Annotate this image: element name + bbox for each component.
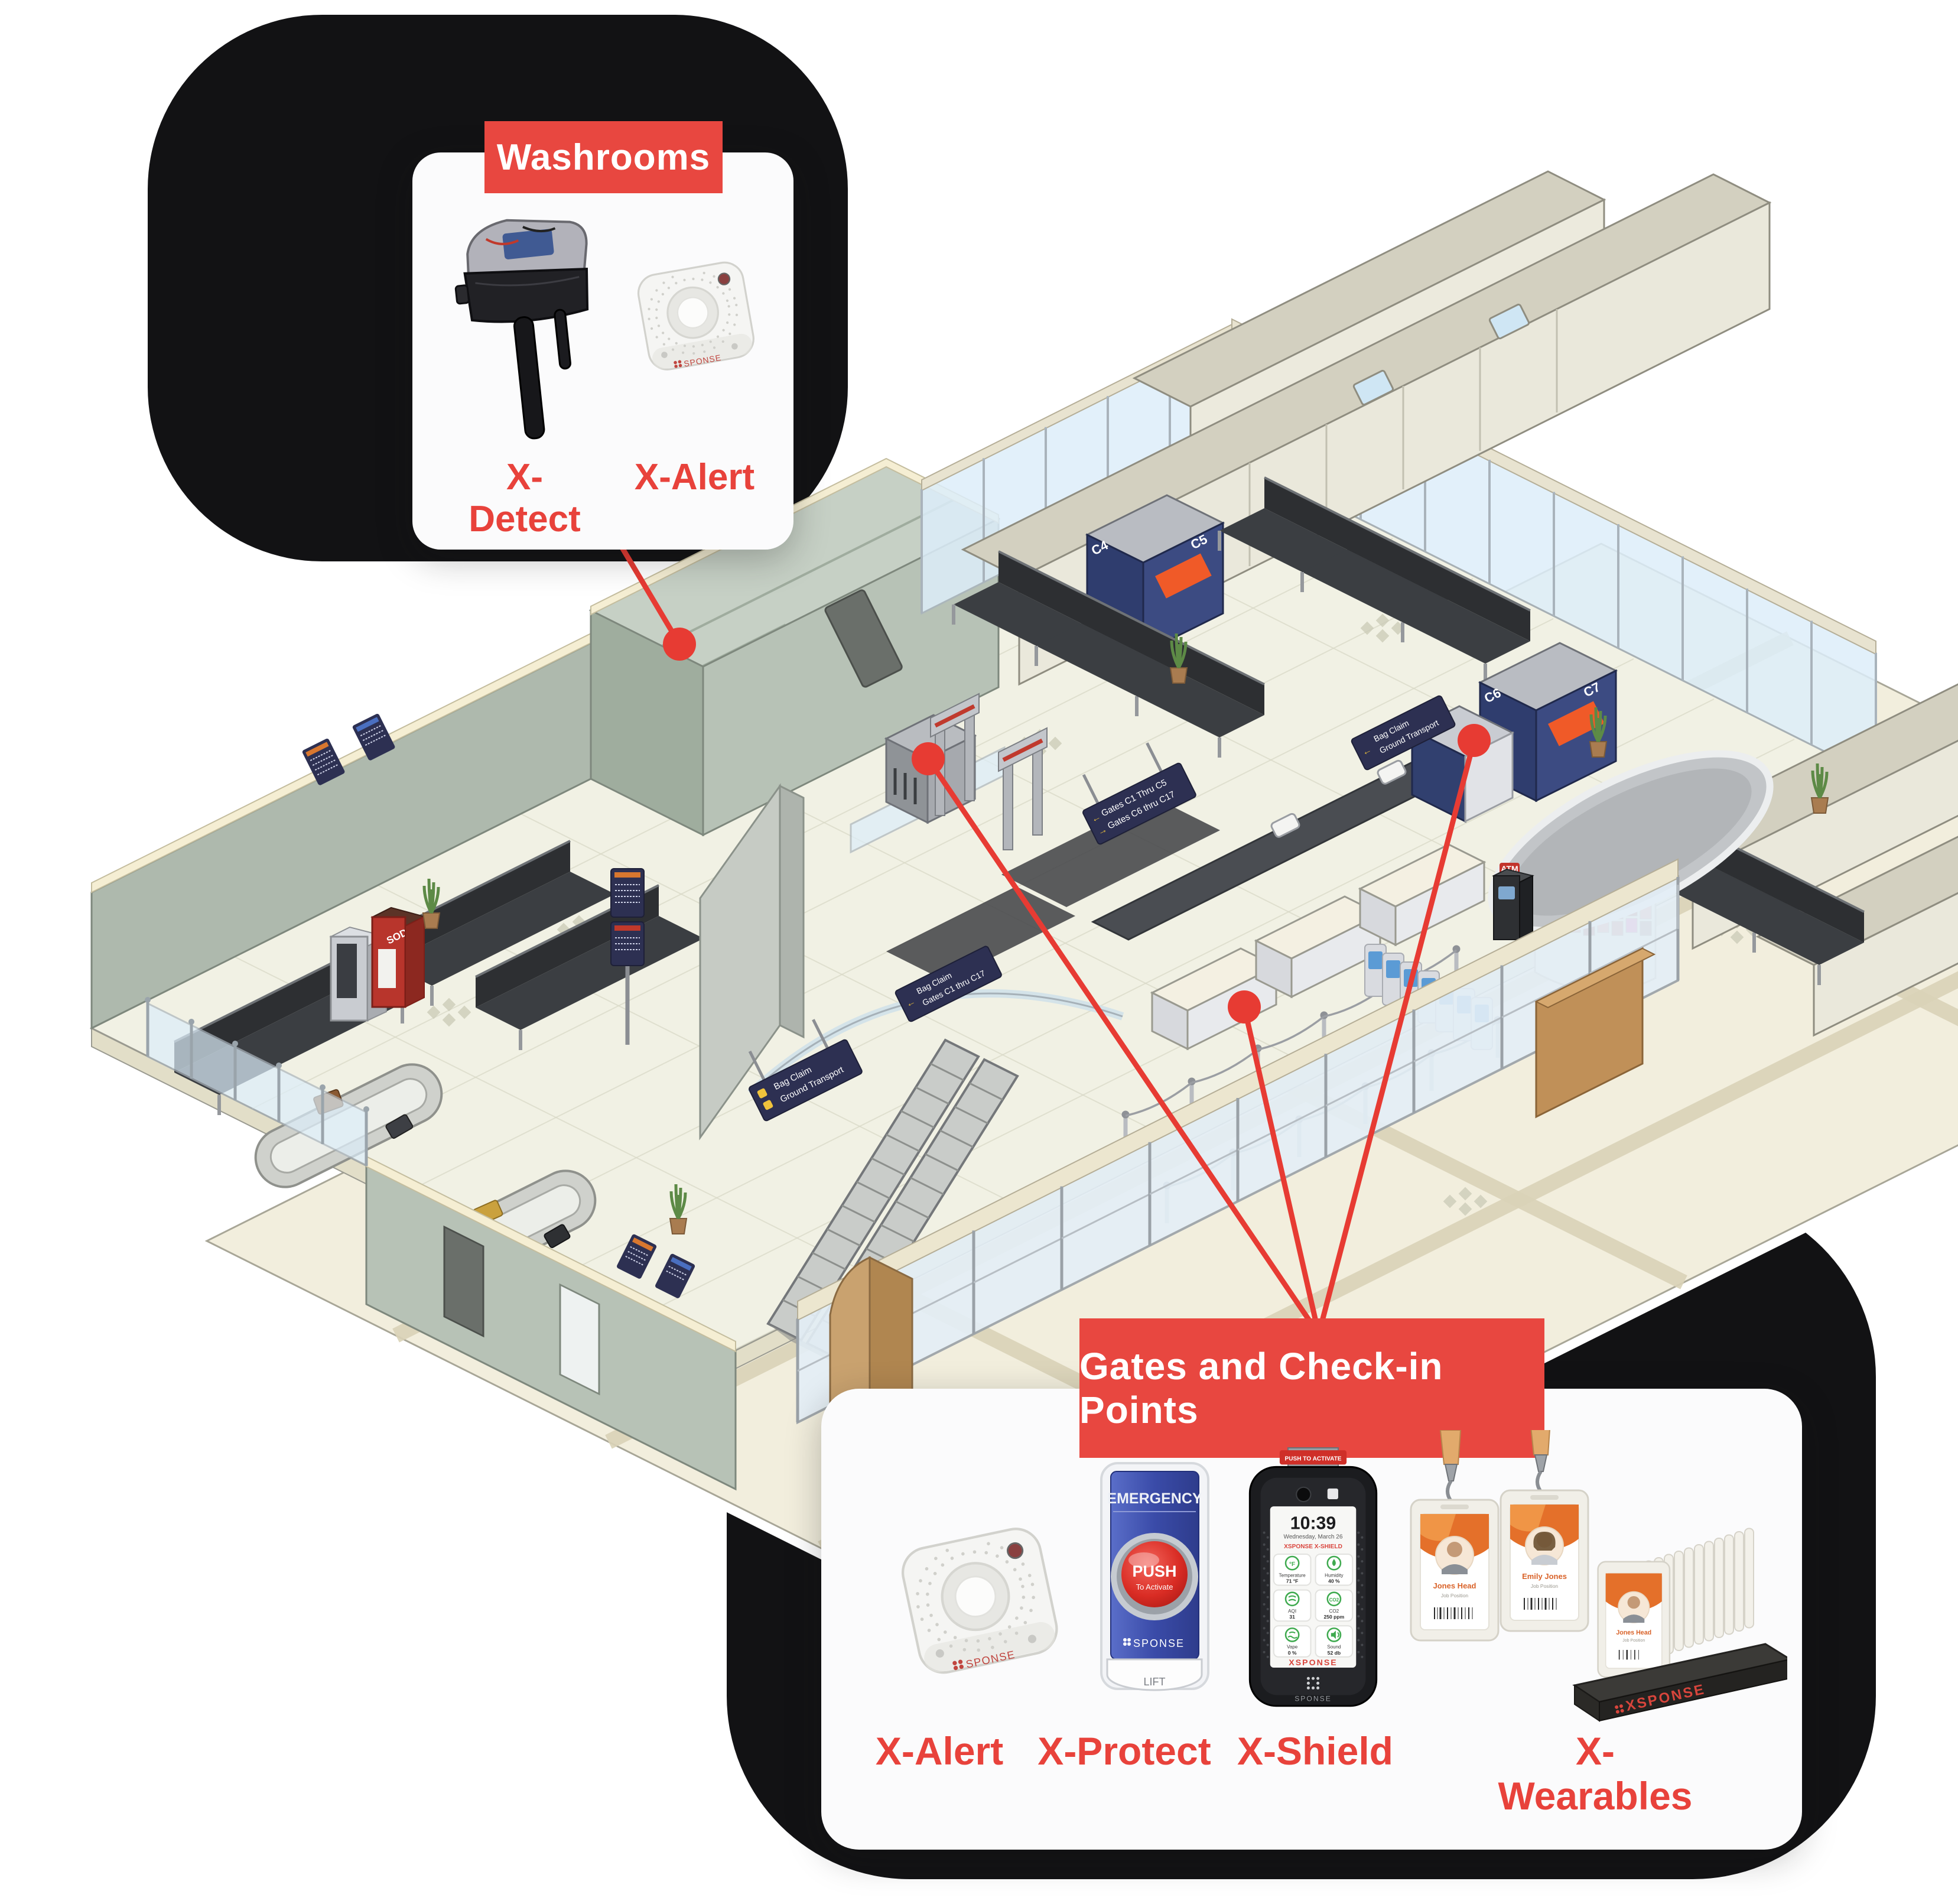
infographic-canvas: C4 C5: [0, 0, 1958, 1904]
atm: ATM: [1494, 863, 1533, 940]
x-alert-product-image: SPONSE: [625, 247, 764, 386]
x-shield-label: X-Shield: [1227, 1728, 1404, 1773]
wearable-badge: Jones Head Job Position: [1411, 1430, 1498, 1640]
screen-app-title: XSPONSE X-SHIELD: [1284, 1544, 1342, 1550]
svg-text:52 db: 52 db: [1328, 1650, 1341, 1656]
svg-text:31: 31: [1289, 1614, 1295, 1620]
wearables-dock: Jones Head Job Position XSPONSE: [1575, 1529, 1787, 1721]
sensor-tile-co2: CO2 CO2 250 ppm: [1316, 1590, 1353, 1622]
location-marker-dot-washrooms: [663, 628, 696, 661]
svg-text:71 °F: 71 °F: [1286, 1578, 1299, 1584]
svg-text:Sound: Sound: [1327, 1645, 1341, 1650]
screen-time: 10:39: [1290, 1514, 1336, 1533]
x-protect-product-image: EMERGENCY PUSH To Activate SPONSE LIFT: [1094, 1455, 1215, 1718]
svg-text:CO2: CO2: [1329, 1597, 1339, 1603]
x-detect-product-image: [434, 189, 617, 455]
activate-banner: PUSH TO ACTIVATE: [1284, 1455, 1341, 1462]
badge-title: Job Position: [1622, 1639, 1645, 1643]
washroom-entrance-door: [444, 1227, 483, 1336]
screen-date: Wednesday, March 26: [1283, 1534, 1342, 1541]
x-wearables-label: X-Wearables: [1495, 1728, 1696, 1818]
wearable-badge: Jones Head Job Position: [1598, 1562, 1670, 1677]
push-text: PUSH: [1132, 1562, 1176, 1580]
badge-title: Job Position: [1531, 1583, 1559, 1589]
svg-text:0 %: 0 %: [1288, 1650, 1297, 1656]
x-alert2-product-image: SPONSE: [880, 1510, 1075, 1693]
svg-text:250 ppm: 250 ppm: [1323, 1614, 1344, 1620]
badge-name: Jones Head: [1616, 1629, 1651, 1636]
to-activate-text: To Activate: [1136, 1583, 1173, 1591]
sensor-tile-vape: Vape 0 %: [1274, 1626, 1311, 1657]
screen-brand: XSPONSE: [1289, 1658, 1338, 1667]
badge-title: Job Position: [1441, 1593, 1469, 1598]
x-shield-product-image: PUSH TO ACTIVATE 10:39 Wednesday, March …: [1236, 1443, 1390, 1721]
badge-name: Jones Head: [1433, 1581, 1476, 1590]
location-marker-dot-checkin: [1228, 990, 1261, 1024]
svg-text:40 %: 40 %: [1328, 1578, 1340, 1584]
x-detect-label: X-Detect: [451, 456, 599, 540]
lift-label: LIFT: [1143, 1676, 1165, 1688]
sensor-tile-aqi: AQI 31: [1274, 1590, 1311, 1622]
sensor-t-sound: Sound 52 db: [1316, 1626, 1353, 1657]
gates-title: Gates and Check-in Points: [1079, 1344, 1544, 1432]
x-alert2-label: X-Alert: [851, 1728, 1028, 1773]
sensor-tile-humidity: Humidity 40 %: [1316, 1554, 1353, 1585]
svg-text:Vape: Vape: [1287, 1645, 1298, 1650]
svg-text:AQI: AQI: [1288, 1609, 1296, 1614]
location-marker-dot-security: [912, 742, 945, 775]
washrooms-title: Washrooms: [497, 137, 711, 178]
emergency-text: EMERGENCY: [1107, 1490, 1202, 1507]
sensor-tile-temperature: °F Temperature 71 °F: [1274, 1554, 1311, 1585]
badge-name: Emily Jones: [1522, 1572, 1567, 1581]
device-brand: SPONSE: [1133, 1637, 1185, 1649]
washroom-entrance-door: [560, 1285, 599, 1394]
wearable-badge: Emily Jones Job Position: [1501, 1430, 1588, 1631]
svg-text:Temperature: Temperature: [1279, 1572, 1306, 1578]
x-alert-label: X-Alert: [628, 456, 761, 498]
x-protect-label: X-Protect: [1036, 1728, 1213, 1773]
svg-text:Humidity: Humidity: [1325, 1572, 1344, 1578]
bezel-brand: SPONSE: [1295, 1695, 1332, 1703]
washrooms-callout-banner: Washrooms: [484, 121, 723, 193]
svg-text:CO2: CO2: [1329, 1609, 1339, 1614]
x-wearables-product-image: Jones Head Job Position Emily Jones Job …: [1406, 1430, 1787, 1728]
location-marker-dot-gate: [1458, 724, 1491, 757]
svg-text:°F: °F: [1289, 1561, 1295, 1568]
